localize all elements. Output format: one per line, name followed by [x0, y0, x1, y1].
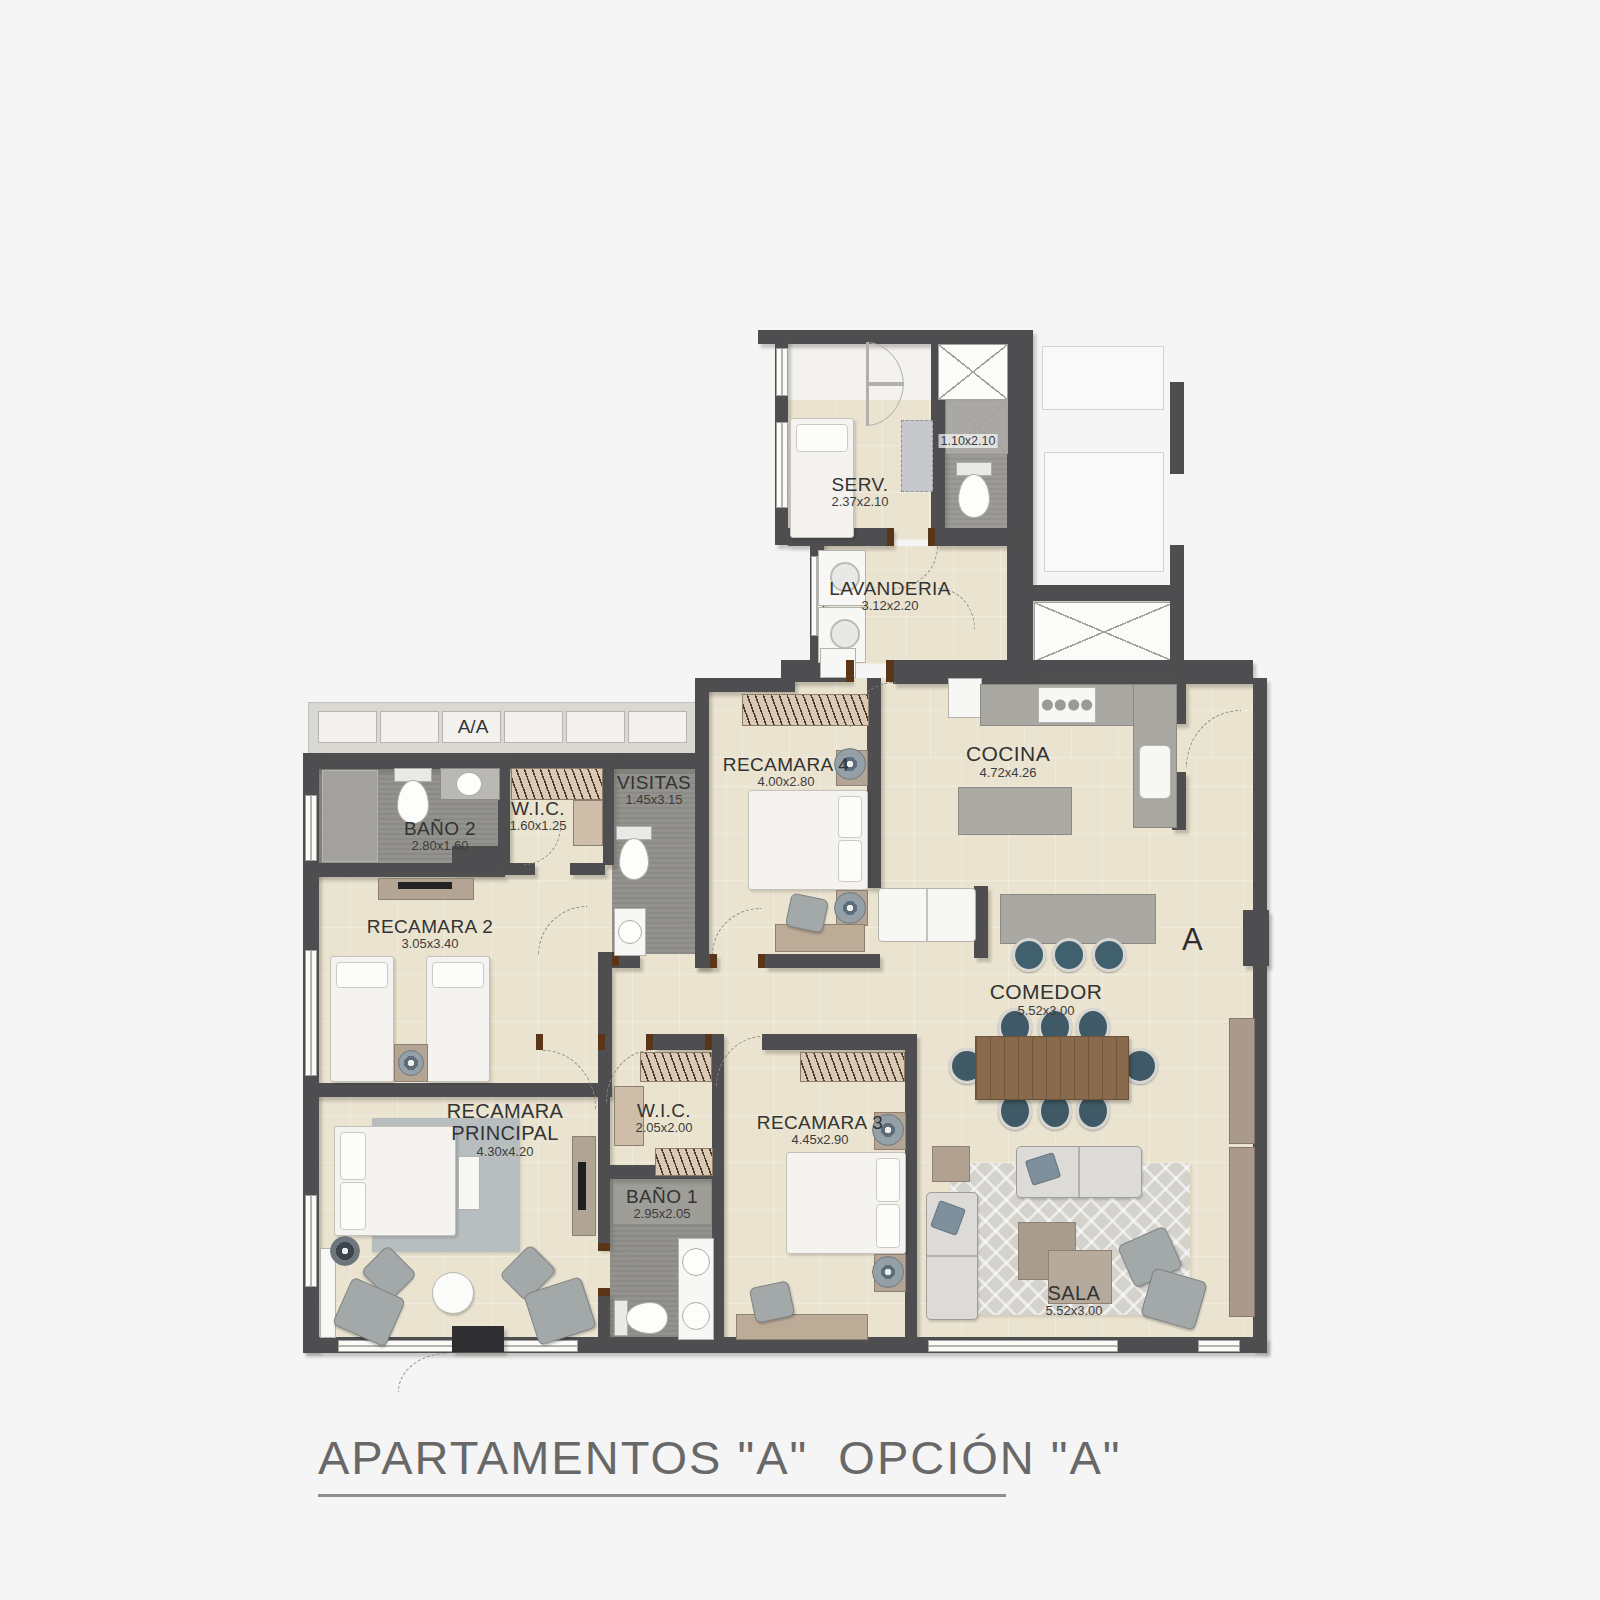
bar-stool: [1052, 938, 1086, 972]
window-left-1: [305, 795, 317, 861]
wall-annex-top: [758, 330, 1018, 344]
master-bed-bench: [458, 1156, 480, 1210]
wall-hall-south-b: [653, 1034, 712, 1050]
room-dims: 1.45x3.15: [617, 793, 691, 808]
room-dims: 5.52x3.00: [990, 1004, 1102, 1019]
dining-table: [975, 1036, 1129, 1100]
bano2-sink: [456, 772, 482, 796]
door-jamb: [646, 1034, 653, 1050]
elevator-2: [1044, 452, 1164, 572]
elevator-1: [1042, 346, 1164, 410]
wall-hall-north-c: [765, 954, 880, 968]
wic2-closet-south: [655, 1148, 713, 1176]
room-name: COMEDOR: [990, 980, 1102, 1004]
shaft-xbox-core: [1034, 602, 1174, 662]
wood-panel-1: [1229, 1018, 1255, 1144]
window-left-2: [305, 950, 317, 1076]
room-name: RECAMARA 3: [757, 1112, 883, 1133]
label-comedor: COMEDOR 5.52x3.00: [990, 980, 1102, 1018]
wall-wic1-visitas: [603, 753, 614, 865]
room-dims: 4.45x2.90: [757, 1133, 883, 1148]
bano1-sink-2: [682, 1302, 710, 1330]
window-annex-left-1: [776, 348, 788, 396]
rec3-closet: [800, 1052, 905, 1082]
wall-master-east: [598, 1097, 610, 1248]
door-jamb: [598, 1243, 610, 1251]
label-bano2: BAÑO 2 2.80x1.60: [404, 818, 476, 854]
bano-aux-toilet-bowl: [958, 474, 990, 518]
rec4-bed-pillow-2: [838, 840, 862, 882]
bar-stool: [1012, 938, 1046, 972]
label-rec-principal: RECAMARA PRINCIPAL 4.30x4.20: [420, 1100, 590, 1159]
door-jamb: [886, 660, 894, 682]
window-bottom-3: [928, 1340, 1118, 1352]
master-bed-pillow-2: [340, 1182, 366, 1230]
wall-wic1-bottom-b: [570, 863, 605, 875]
room-dims: 2.37x2.10: [831, 495, 888, 510]
rec4-closet: [742, 694, 869, 726]
door-jamb: [846, 660, 854, 682]
ac-panel: [380, 711, 439, 743]
door-jamb: [928, 528, 935, 546]
window-left-3: [305, 1195, 317, 1287]
kitchen-island: [958, 787, 1072, 835]
room-name: VISITAS: [617, 772, 691, 793]
door-jamb: [598, 1288, 610, 1296]
master-tv: [578, 1162, 586, 1210]
wic1-shelf: [573, 800, 603, 846]
room-name: BAÑO 1: [626, 1186, 698, 1207]
room-dims: 5.52x3.00: [1045, 1304, 1102, 1319]
room-dims: 1.10x2.10: [939, 434, 998, 448]
kitchen-bar-counter: [1000, 894, 1156, 944]
wall-core-stub-2: [1170, 545, 1184, 669]
room-name: COCINA: [966, 742, 1050, 766]
wall-main-right: [1253, 678, 1267, 1351]
room-name: W.I.C.: [635, 1100, 692, 1121]
room-dims: 2.80x1.60: [404, 839, 476, 854]
wall-serv-lav-b: [935, 528, 1010, 546]
wall-rec3-sala: [905, 1034, 917, 1337]
rec3-bed-pillow-1: [876, 1158, 900, 1202]
kitchen-fridge: [948, 678, 982, 718]
ac-panel: [566, 711, 625, 743]
door-jamb: [598, 1034, 605, 1050]
wall-hall-south-c: [762, 1034, 908, 1050]
dining-bench: [878, 888, 976, 942]
kitchen-sink: [1139, 745, 1171, 799]
kitchen-stove: [1038, 687, 1096, 723]
wall-wic1-bottom-a: [505, 863, 535, 875]
room-dims: 3.05x3.40: [367, 937, 493, 952]
shaft-xbox-corridor: [938, 344, 1008, 400]
sala-side-table: [932, 1146, 970, 1182]
room-name: W.I.C.: [509, 798, 566, 819]
rec4-bed-pillow-1: [838, 796, 862, 838]
rec4-speaker-2: [834, 892, 866, 924]
wall-core-stub-1: [1170, 382, 1184, 474]
rec2-tv: [398, 882, 452, 889]
label-recamara3: RECAMARA 3 4.45x2.90: [757, 1112, 883, 1148]
door-jamb: [710, 954, 717, 968]
master-round-table: [432, 1272, 474, 1314]
serv-bed-pillow: [796, 424, 848, 452]
label-wic2: W.I.C. 2.05x2.00: [635, 1100, 692, 1136]
serv-wardrobe: [901, 420, 933, 492]
door-jamb: [705, 1034, 712, 1050]
wic1-closet: [511, 768, 603, 800]
label-recamara4: RECAMARA 4 4.00x2.80: [723, 754, 849, 790]
room-dims: 1.60x1.25: [509, 819, 566, 834]
rec2-lamp: [398, 1050, 424, 1076]
door-jamb: [758, 954, 765, 968]
room-name: RECAMARA 2: [367, 916, 493, 937]
door-arc-balcony: [398, 1353, 447, 1392]
wall-rec2-east: [598, 952, 612, 1097]
master-bed-pillow-1: [340, 1132, 366, 1180]
ac-panel: [318, 711, 377, 743]
rec3-speaker-2: [872, 1256, 904, 1288]
floorplan-canvas: A/A: [0, 0, 1600, 1600]
visitas-sink: [618, 920, 642, 944]
master-floor-lamp: [330, 1236, 360, 1266]
room-name: RECAMARA PRINCIPAL: [420, 1100, 590, 1145]
label-lavanderia: LAVANDERIA 3.12x2.20: [829, 578, 951, 614]
room-name: LAVANDERIA: [829, 578, 951, 599]
label-bano1: BAÑO 1 2.95x2.05: [626, 1186, 698, 1222]
wic2-closet-north: [640, 1052, 712, 1082]
title-underline: [318, 1494, 1006, 1497]
label-sala: SALA 5.52x3.00: [1045, 1282, 1102, 1319]
room-dims: 3.12x2.20: [829, 599, 951, 614]
rec2-bed-1-pillow: [336, 962, 388, 988]
window-annex-left-2: [776, 422, 788, 508]
dryer-door: [830, 619, 860, 649]
plan-title: APARTAMENTOS "A" OPCIÓN "A": [318, 1430, 1122, 1485]
room-dims: 2.95x2.05: [626, 1207, 698, 1222]
window-bottom-1: [338, 1340, 454, 1352]
room-dims: 4.72x4.26: [966, 766, 1050, 781]
door-jamb: [536, 1034, 543, 1050]
rec2-bed-2-pillow: [432, 962, 484, 988]
ac-panel: [504, 711, 563, 743]
bano1-toilet-bowl: [626, 1302, 668, 1334]
room-name: BAÑO 2: [404, 818, 476, 839]
bano2-shower: [322, 770, 378, 862]
master-tv-block: [452, 1326, 504, 1352]
wall-master-east-b: [598, 1292, 610, 1337]
room-dims: 2.05x2.00: [635, 1121, 692, 1136]
wall-core-left: [1007, 330, 1033, 712]
room-name: SALA: [1045, 1282, 1102, 1304]
room-name: SERV.: [831, 474, 888, 495]
window-bottom-4: [1198, 1340, 1240, 1352]
wall-core-bottom: [1032, 660, 1174, 676]
label-recamara2: RECAMARA 2 3.05x3.40: [367, 916, 493, 952]
label-bano-aux: 1.10x2.10: [939, 434, 998, 448]
door-jamb: [887, 528, 894, 546]
ac-label: A/A: [448, 716, 498, 738]
ac-panel: [628, 711, 687, 743]
wall-core-mid: [1032, 585, 1174, 601]
rec3-bed-pillow-2: [876, 1204, 900, 1248]
room-name: RECAMARA 4: [723, 754, 849, 775]
visitas-toilet-bowl: [619, 838, 649, 880]
wood-panel-2: [1229, 1147, 1255, 1317]
wall-right-column: [1243, 910, 1269, 966]
label-serv: SERV. 2.37x2.10: [831, 474, 888, 510]
label-wic1: W.I.C. 1.60x1.25: [509, 798, 566, 834]
room-dims: 4.00x2.80: [723, 775, 849, 790]
bano1-sink-1: [682, 1248, 710, 1276]
wall-visitas-rec4: [695, 678, 709, 968]
bar-stool: [1092, 938, 1126, 972]
label-cocina: COCINA 4.72x4.26: [966, 742, 1050, 780]
room-dims: 4.30x4.20: [420, 1145, 590, 1160]
section-marker: A: [1182, 922, 1204, 958]
wall-rec4-top: [695, 678, 795, 692]
wall-bar-stub: [974, 886, 988, 958]
label-visitas: VISITAS 1.45x3.15: [617, 772, 691, 808]
